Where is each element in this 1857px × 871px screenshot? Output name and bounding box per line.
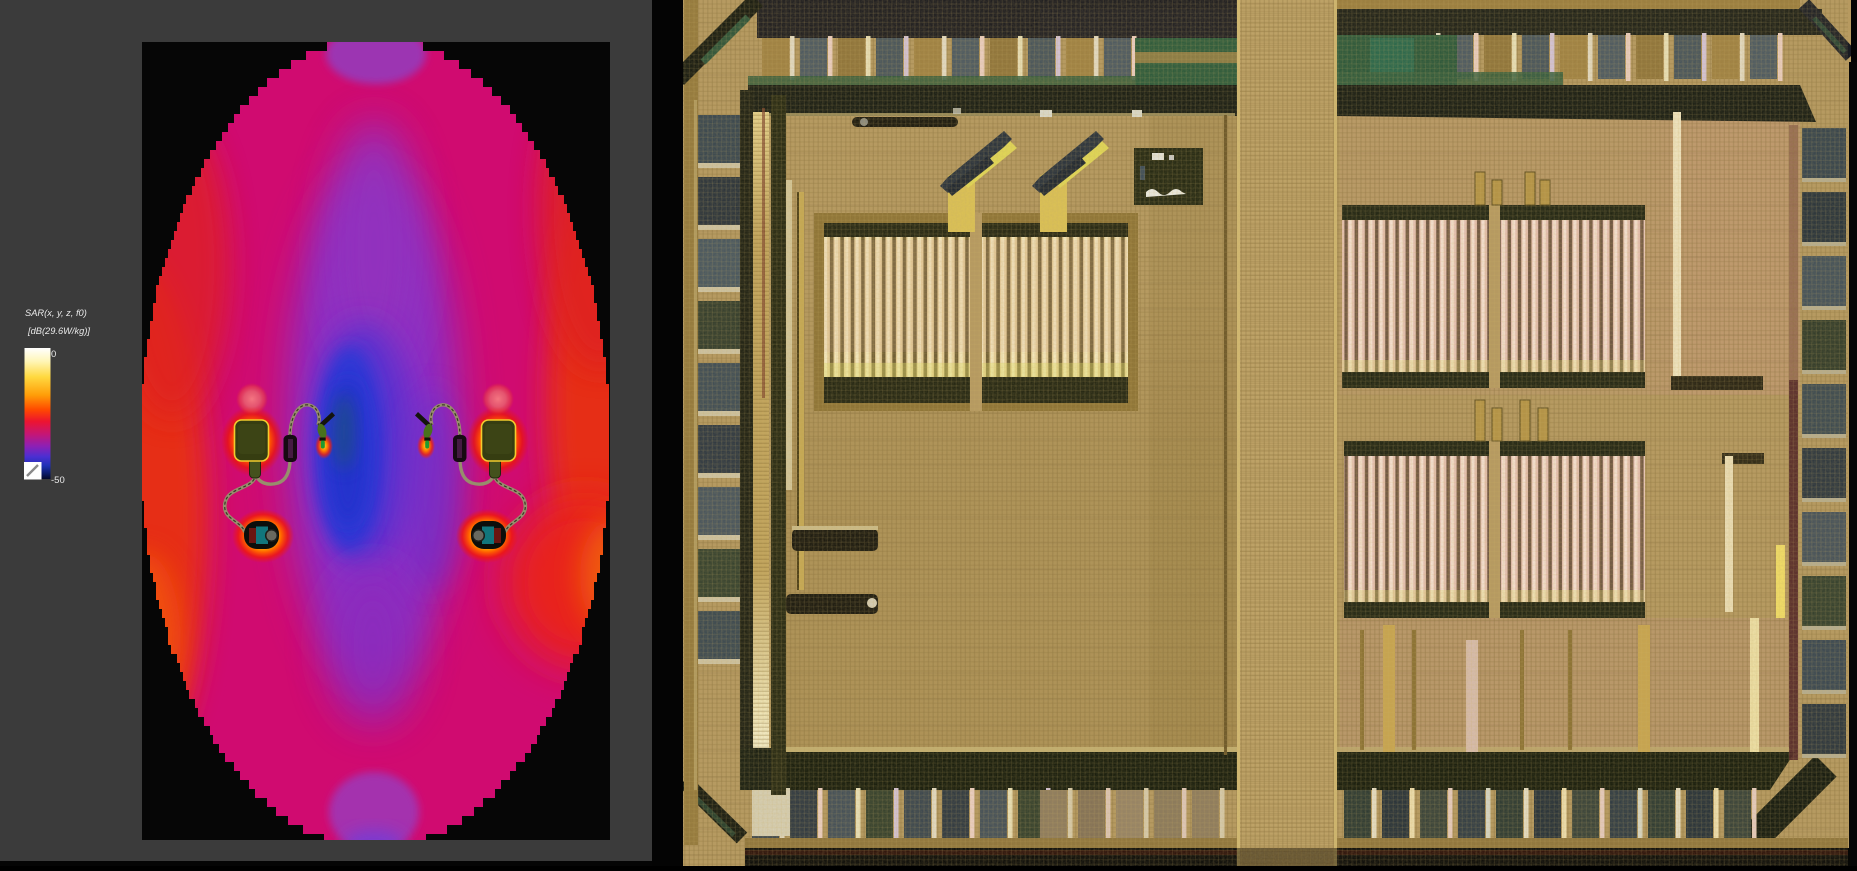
svg-text:[dB(29.6W/kg)]: [dB(29.6W/kg)] (27, 326, 90, 336)
svg-text:-50: -50 (51, 475, 65, 486)
svg-text:0: 0 (51, 349, 56, 360)
svg-text:SAR(x, y, z, f0): SAR(x, y, z, f0) (25, 308, 87, 318)
